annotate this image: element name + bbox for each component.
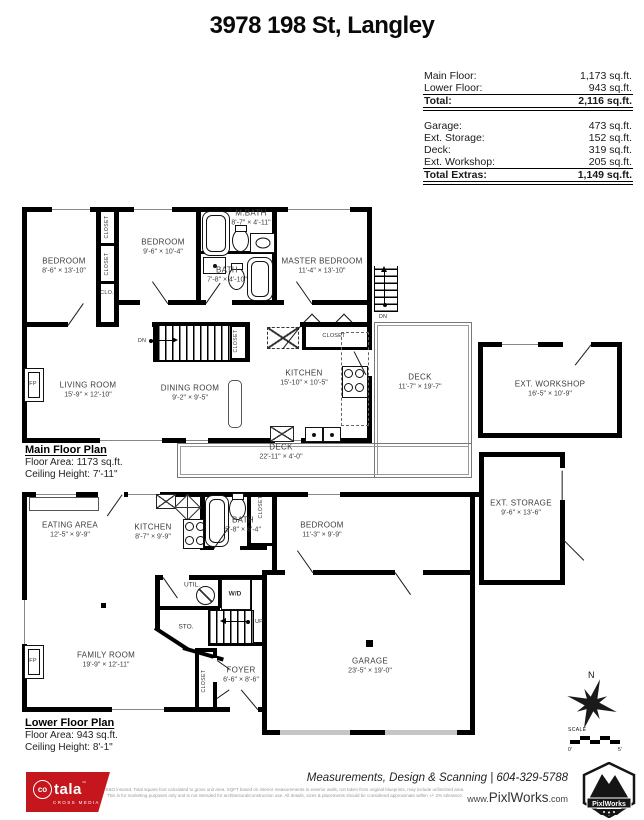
room-name: EATING AREA [42,521,98,531]
door-swing-icon [107,494,123,516]
cotala-logo-subtitle: CROSS MEDIA [53,800,110,805]
floor-plan-canvas: BEDROOM8'-6" × 13'-10"BEDROOM9'-6" × 10'… [0,0,644,820]
closet-label: CLOSET [104,215,110,238]
room-dims: 9'-2" × 9'-5" [161,394,219,403]
door-swing-icon [564,540,585,561]
scale-bar: SCALE 0' 5' [566,727,636,755]
scale-end-label: 5' [618,747,622,753]
room-dims: 15'-10" × 10'-5" [280,379,328,388]
room-label-family-room: FAMILY ROOM19'-9" × 12'-11" [77,651,135,670]
room-name: BEDROOM [300,521,343,531]
room-name: EXT. STORAGE [490,499,552,509]
door-swing-icon [561,471,562,501]
room-name: BEDROOM [141,238,184,248]
fireplace-label: FP [29,381,36,387]
counter-icon [29,497,99,511]
wall [479,452,484,585]
badge-star [608,812,610,814]
door-opening [285,570,313,575]
bathroom-sink-icon [250,233,275,253]
arrow-dot [246,620,250,624]
wall [267,570,368,575]
structural-post-icon [366,640,373,647]
garage-door-icon [385,730,457,735]
room-label-kitchen-main: KITCHEN15'-10" × 10'-5" [280,369,328,388]
closet-door-chevron-icon [304,314,321,331]
staircase-main-dn [157,325,231,361]
wall [247,543,277,546]
door-swing-icon [574,344,591,365]
pixlworks-badge-text: PixlWorks [592,801,626,808]
room-dims: 23'-5" × 19'-0" [348,667,392,676]
room-dims: 7'-8" × 4'-10" [207,276,247,285]
stairs-dn-label: DN [138,338,146,344]
cotala-logo-tala: tala [54,781,82,798]
room-dims: 22'-11" × 4'-0" [259,453,302,462]
stove-icon [183,519,204,549]
trademark-symbol: ™ [82,780,86,785]
window-icon [112,707,164,712]
lower-floor-plan-label: Lower Floor Plan [25,716,118,730]
room-name: FOYER [223,666,259,676]
door-opening [119,322,152,327]
window-icon [52,207,90,212]
room-name: KITCHEN [134,523,171,533]
water-heater-icon [196,586,215,605]
room-label-kitchen-lower: KITCHEN8'-7" × 9'-9" [134,523,171,542]
floorplan-page: 3978 198 St, Langley Main Floor:1,173 sq… [0,0,644,820]
room-label-ext-storage: EXT. STORAGE9'-6" × 13'-6" [490,499,552,518]
room-label-deck-bottom: DECK22'-11" × 4'-0" [259,443,302,462]
wall [195,648,199,710]
door-swing-icon [162,577,177,598]
room-label-bedroom1: BEDROOM8'-6" × 13'-10" [42,257,86,276]
door-swing-icon [217,690,230,700]
kitchen-sink-icon [323,427,341,442]
wall [96,212,101,327]
structural-post-icon [101,603,106,608]
room-label-ext-workshop: EXT. WORKSHOP16'-5" × 10'-9" [515,380,586,399]
room-dims: 9'-6" × 10'-4" [141,248,184,257]
room-label-deck-side: DECK11'-7" × 19'-7" [398,373,441,392]
wall [478,342,483,438]
room-name: M.BATH [231,209,270,219]
room-dims: 8'-6" × 13'-10" [42,267,86,276]
room-label-foyer: FOYER6'-6" × 8'-6" [223,666,259,685]
room-name: KITCHEN [280,369,328,379]
window-icon [288,207,350,212]
room-dims: 15'-9" × 12'-10" [60,391,117,400]
arrow-dot [149,339,153,343]
closet-label: CLOSET [233,329,239,352]
closet-label: CLOSET [201,669,207,692]
main-floor-area: Floor Area: 1173 sq.ft. [25,457,123,469]
footer-tagline: Measurements, Design & Scanning | 604-32… [248,772,568,784]
wall [196,212,201,303]
door-swing-icon [394,572,411,595]
north-label: N [588,670,595,680]
toilet-icon [232,229,249,252]
window-icon [134,207,172,212]
room-dims: 6'-6" × 8'-6" [223,676,259,685]
stove-burner-icon [196,536,205,545]
wall [272,492,277,574]
website-link[interactable]: www.PixlWorks.com [248,789,568,807]
room-dims: 8'-7" × 4'-11" [231,219,270,228]
kitchen-counter-icon [341,332,369,426]
window-icon [308,492,340,497]
scale-bar-segment [580,736,590,740]
bathtub-icon [247,257,273,301]
door-opening [206,300,232,305]
counter-appliance-icon [174,494,201,521]
util-label: UTIL. [184,582,200,589]
room-label-bath-main: BATH7'-8" × 4'-10" [207,266,247,285]
closet-label: CLOSET [104,252,110,275]
room-dims: 11'-7" × 19'-7" [398,383,441,392]
closet-door-chevron-icon [336,314,353,331]
room-name: DINING ROOM [161,384,219,394]
stairs-arrowhead [172,337,178,343]
stairs-arrow [384,272,385,304]
badge-star [603,811,605,813]
website-prefix: www. [467,794,489,804]
room-dims: 5'-8" × 6'-4" [225,526,261,535]
garage-door-icon [280,730,350,735]
main-floor-ceiling-height: Ceiling Height: 7'-11" [25,469,123,481]
room-name: LIVING ROOM [60,381,117,391]
room-label-master-bedroom: MASTER BEDROOM11'-4" × 13'-10" [281,257,362,276]
room-dims: 9'-6" × 13'-6" [490,509,552,518]
room-dims: 11'-3" × 9'-9" [300,531,343,540]
door-opening [395,570,423,575]
door-opening [140,300,168,305]
wall [470,492,475,735]
wall [96,281,119,284]
door-opening [284,300,312,305]
room-name: BEDROOM [42,257,86,267]
stairs-arrow [226,621,246,622]
room-name: DECK [259,443,302,453]
scale-bar-segment [610,740,620,744]
stairs-arrowhead [220,618,226,624]
arrow-dot [383,303,387,307]
room-label-living-room: LIVING ROOM15'-9" × 12'-10" [60,381,117,400]
wall [114,212,119,322]
scale-label: SCALE [568,727,586,733]
wall [479,452,565,457]
compass-rose: N [560,668,624,732]
room-label-eating-area: EATING AREA12'-5" × 9'-9" [42,521,98,540]
stairs-arrow [152,340,172,341]
wall [478,433,622,438]
scale-bar-segment [590,740,600,744]
wall [478,342,622,347]
dishwasher-icon [270,426,294,442]
wall [245,322,250,362]
wall [96,243,119,246]
room-label-garage: GARAGE23'-5" × 19'-0" [348,657,392,676]
door-opening [230,707,258,712]
room-dims: 19'-9" × 12'-11" [77,661,135,670]
room-name: GARAGE [348,657,392,667]
deck-outline-inner [180,446,469,475]
door-opening [68,322,96,327]
window-icon [502,342,538,347]
room-name: FAMILY ROOM [77,651,135,661]
lower-floor-ceiling-height: Ceiling Height: 8'-1" [25,742,118,754]
closet-label: CLOSET [258,495,264,518]
room-name: MASTER BEDROOM [281,257,362,267]
bathtub-icon [202,211,230,256]
kitchen-sink-icon [305,427,323,442]
wall [617,342,622,438]
closet-label: CLO. [100,290,114,296]
window-icon [22,600,27,644]
door-opening [563,342,591,347]
room-name: DECK [398,373,441,383]
storage-label: STO. [178,624,193,631]
website-suffix: .com [548,794,568,804]
room-dims: 16'-5" × 10'-9" [515,390,586,399]
window-icon [186,438,208,443]
washer-dryer-label: W/D [229,591,242,598]
room-label-dining-room: DINING ROOM9'-2" × 9'-5" [161,384,219,403]
closet-label: CLOSET [322,333,345,339]
stove-burner-icon [196,522,205,531]
fireplace-label: FP [29,658,36,664]
website-name: PixlWorks [489,790,549,805]
deck-outline [177,443,472,478]
room-dims: 12'-5" × 9'-9" [42,531,98,540]
room-label-mbath: M.BATH8'-7" × 4'-11" [231,209,270,228]
main-floor-plan-label: Main Floor Plan [25,443,123,457]
cotala-logo-co: co [33,780,52,799]
badge-star [613,811,615,813]
wall [479,580,565,585]
stove-burner-icon [185,536,194,545]
scale-start-label: 0' [568,747,572,753]
lower-floor-plan-title: Lower Floor Plan Floor Area: 943 sq.ft. … [25,716,118,754]
wall [155,575,160,630]
scale-bar-segment [600,736,610,740]
wall [262,570,267,735]
cabinet-icon [228,380,242,428]
room-dims: 11'-4" × 13'-10" [281,267,362,276]
room-name: BATH [207,266,247,276]
room-dims: 8'-7" × 9'-9" [134,533,171,542]
stove-burner-icon [185,522,194,531]
door-opening [163,575,189,580]
stairs-dn-label: DN [379,314,387,320]
main-floor-plan-title: Main Floor Plan Floor Area: 1173 sq.ft. … [25,443,123,481]
lower-floor-area: Floor Area: 943 sq.ft. [25,730,118,742]
room-name: EXT. WORKSHOP [515,380,586,390]
stairs-up-label: UP [255,619,263,625]
room-label-bath-lower: BATH5'-8" × 6'-4" [225,516,261,535]
room-label-bedroom2: BEDROOM9'-6" × 10'-4" [141,238,184,257]
staircase-lower-up [208,610,254,644]
scale-bar-segment [570,740,580,744]
room-name: BATH [225,516,261,526]
stairs-arrowhead [381,266,387,272]
room-label-bedroom-lower: BEDROOM11'-3" × 9'-9" [300,521,343,540]
pixlworks-badge: PixlWorks [580,762,638,818]
